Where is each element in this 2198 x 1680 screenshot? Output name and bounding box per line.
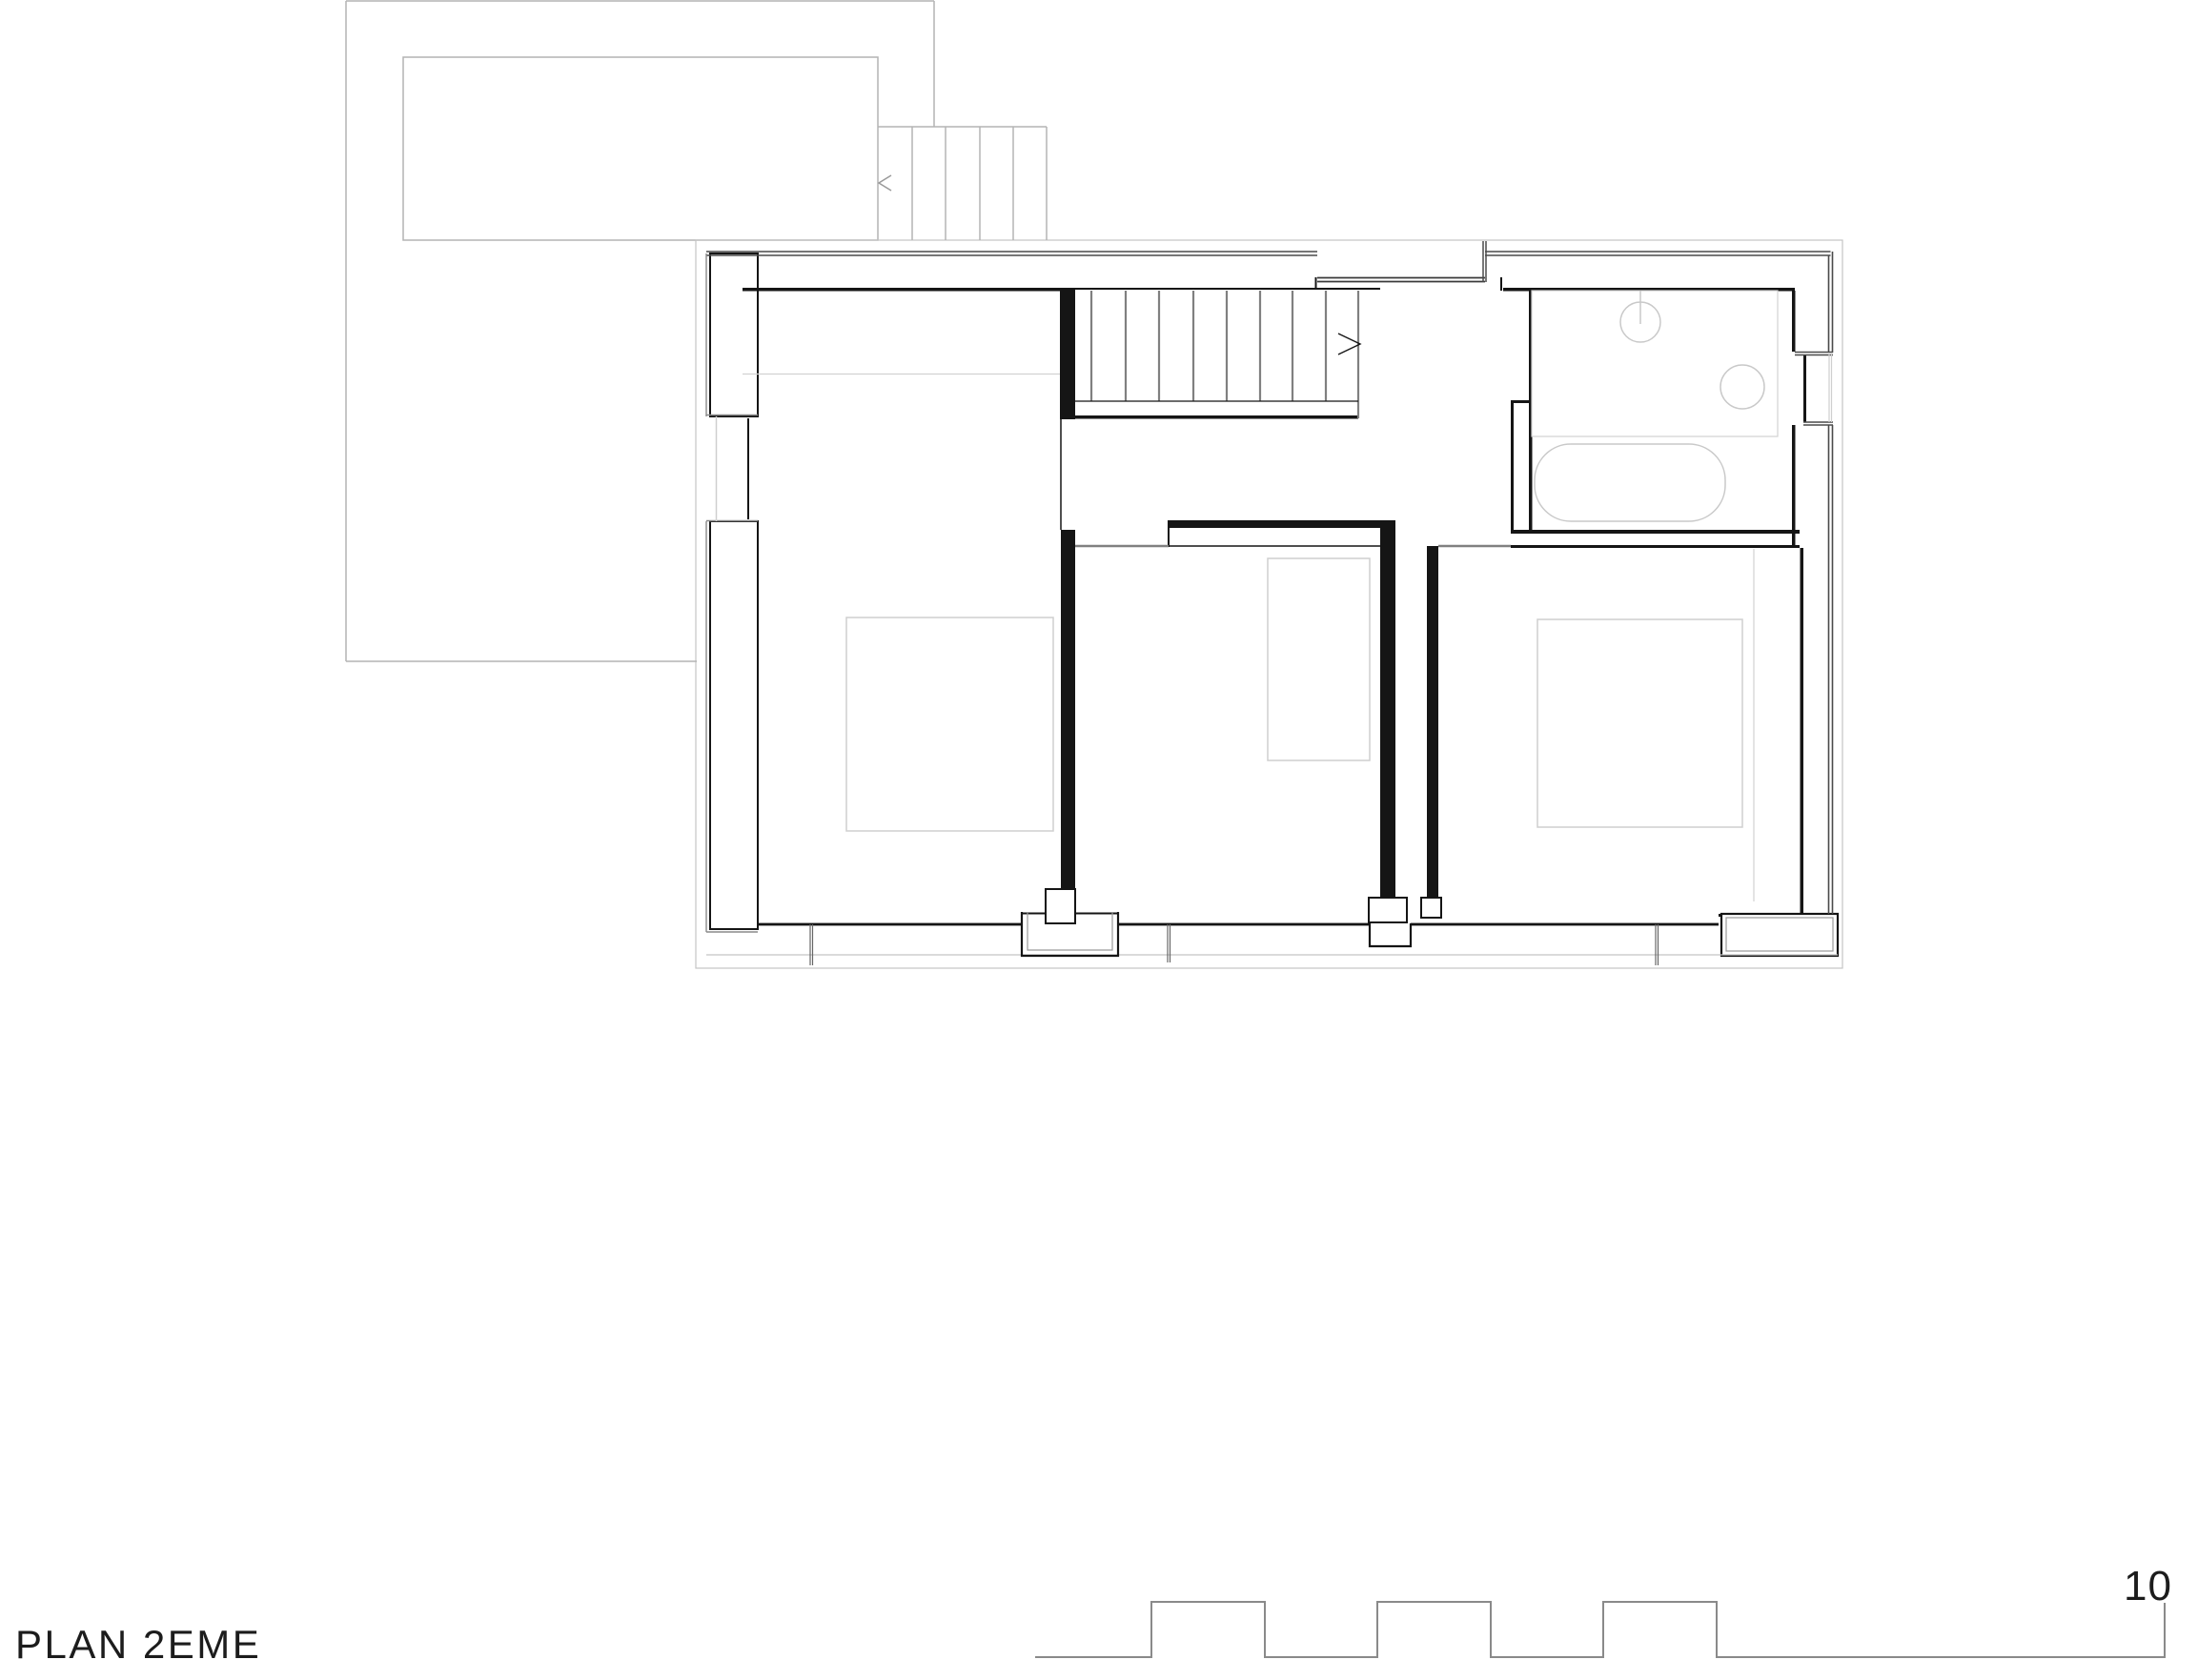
se-balcony-outer (1721, 914, 1838, 956)
bed-left-room (846, 617, 1053, 831)
south-wall-seg-left (758, 923, 1022, 926)
plan-title: PLAN 2EME (15, 1622, 261, 1668)
stair-arrow-down (1338, 334, 1360, 354)
stair-landing-strip (1060, 415, 1358, 419)
page-number: 10 (2124, 1563, 2172, 1610)
bath-wall-west-outer (1511, 400, 1514, 532)
bath-wc (1720, 365, 1764, 409)
floor-plan-sheet: PLAN 2EME 10 (0, 0, 2198, 1680)
east-wall-inner-right-room (1801, 548, 1804, 917)
wall-divider-left (1061, 530, 1075, 889)
south-wall-seg-mid (1118, 923, 1370, 926)
bath-wall-east-lower (1792, 425, 1796, 548)
bath-finish-outline (1532, 291, 1778, 436)
ext-stair-arrow-up (879, 175, 891, 191)
wall-divider-mid-right-a (1380, 520, 1395, 898)
east-window-recess-face (1803, 354, 1806, 422)
bed-middle-room (1268, 558, 1370, 760)
wall-pier-stair (1060, 288, 1075, 419)
terrace-inner-outline (403, 57, 878, 240)
bath-wall-west-connector (1511, 400, 1532, 403)
bath-wall-south-outer (1511, 545, 1800, 548)
wall-divider-mid-right-b (1427, 546, 1438, 898)
floor-plan-drawing (0, 0, 2198, 1680)
plan-boundary (696, 240, 1842, 968)
facade-profile (1035, 1602, 2165, 1657)
bed-right-room (1537, 619, 1742, 827)
west-wall-upper (710, 253, 758, 416)
bump-mid-outer (1370, 923, 1411, 946)
bath-wall-east-upper (1792, 291, 1796, 352)
wall-divider-foot-b (1421, 898, 1441, 918)
wall-divider-foot-a (1369, 898, 1407, 922)
bath-wall-south-inner (1511, 530, 1800, 534)
wall-divider-left-foot (1046, 889, 1075, 923)
wall-top-interior (743, 288, 1060, 292)
west-wall-lower (710, 521, 758, 929)
bathtub (1535, 444, 1725, 521)
wall-band-hall (1169, 520, 1380, 528)
south-wall-seg-right (1411, 923, 1719, 926)
